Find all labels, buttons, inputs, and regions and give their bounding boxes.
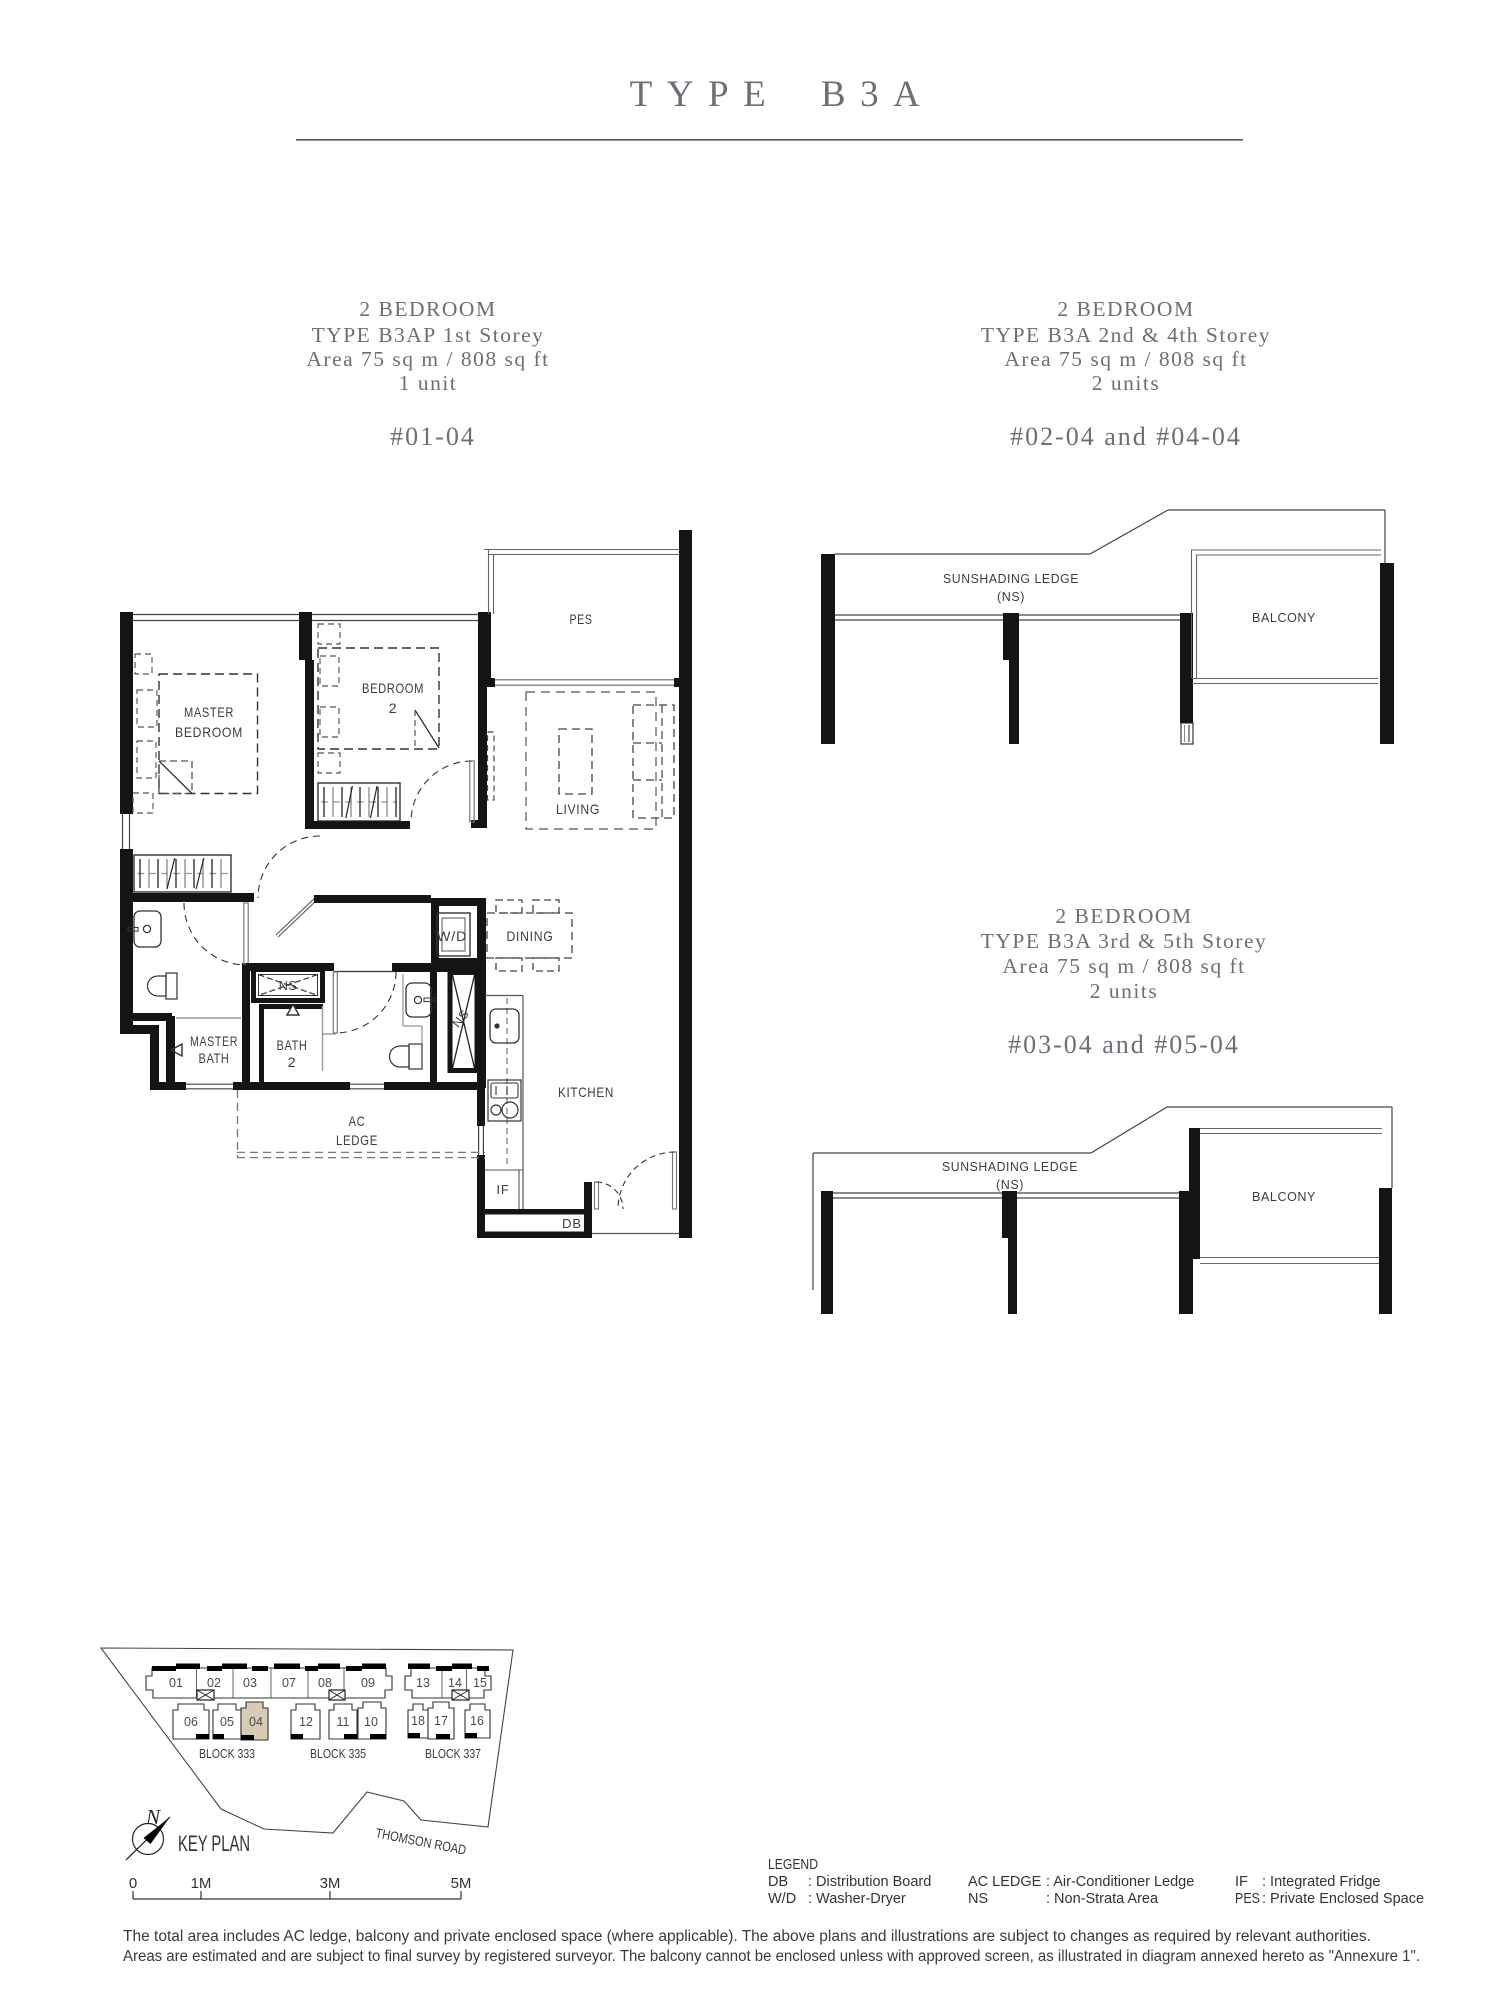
- svg-text:16: 16: [470, 1714, 484, 1728]
- svg-text:09: 09: [361, 1676, 375, 1690]
- svg-text:DB: DB: [768, 1874, 788, 1890]
- svg-text:BEDROOM: BEDROOM: [175, 724, 243, 740]
- svg-text:NS: NS: [279, 979, 298, 993]
- svg-text:12: 12: [299, 1715, 313, 1729]
- svg-text:KITCHEN: KITCHEN: [558, 1084, 614, 1100]
- svg-text:#02-04 and #04-04: #02-04 and #04-04: [1010, 422, 1242, 451]
- svg-text:NS: NS: [450, 1007, 472, 1030]
- svg-text:2 BEDROOM: 2 BEDROOM: [1057, 297, 1194, 321]
- svg-text:MASTER: MASTER: [184, 704, 234, 720]
- svg-text:: Washer-Dryer: : Washer-Dryer: [808, 1891, 906, 1907]
- svg-text:Area 75 sq m / 808 sq ft: Area 75 sq m / 808 sq ft: [1002, 954, 1245, 978]
- svg-text:3M: 3M: [320, 1875, 341, 1892]
- svg-text:BEDROOM: BEDROOM: [362, 680, 424, 696]
- svg-text:07: 07: [282, 1676, 296, 1690]
- svg-text:IF: IF: [496, 1182, 509, 1197]
- svg-text:The total area includes AC led: The total area includes AC ledge, balcon…: [123, 1928, 1371, 1945]
- svg-text:11: 11: [337, 1715, 350, 1729]
- svg-text:TYPE B3A 2nd & 4th Storey: TYPE B3A 2nd & 4th Storey: [981, 323, 1271, 347]
- svg-text:SUNSHADING LEDGE: SUNSHADING LEDGE: [942, 1160, 1078, 1174]
- svg-text:Areas are estimated and are su: Areas are estimated and are subject to f…: [123, 1948, 1420, 1965]
- svg-text:TYPE B3A 3rd & 5th Storey: TYPE B3A 3rd & 5th Storey: [981, 929, 1268, 953]
- svg-text:: Non-Strata Area: : Non-Strata Area: [1046, 1891, 1159, 1907]
- svg-text:DINING: DINING: [507, 928, 554, 944]
- svg-text:LEGEND: LEGEND: [768, 1857, 818, 1873]
- svg-text:BATH: BATH: [277, 1037, 308, 1053]
- svg-text:BALCONY: BALCONY: [1252, 610, 1316, 625]
- svg-text:05: 05: [220, 1715, 234, 1729]
- svg-text:NS: NS: [968, 1891, 988, 1907]
- svg-text:02: 02: [207, 1676, 221, 1690]
- svg-text:5M: 5M: [451, 1875, 472, 1892]
- svg-text:BLOCK 335: BLOCK 335: [310, 1746, 366, 1761]
- svg-text:(NS): (NS): [997, 590, 1025, 604]
- svg-text:BLOCK 333: BLOCK 333: [199, 1746, 255, 1761]
- svg-text:17: 17: [434, 1714, 448, 1728]
- svg-text:LEDGE: LEDGE: [336, 1132, 378, 1148]
- svg-text:: Air-Conditioner Ledge: : Air-Conditioner Ledge: [1046, 1874, 1194, 1890]
- svg-text:KEY PLAN: KEY PLAN: [178, 1831, 250, 1856]
- svg-text:BALCONY: BALCONY: [1252, 1189, 1316, 1204]
- svg-text:2 BEDROOM: 2 BEDROOM: [359, 297, 496, 321]
- svg-text:2 units: 2 units: [1090, 979, 1158, 1003]
- svg-text:04: 04: [249, 1715, 263, 1729]
- svg-text:MASTER: MASTER: [190, 1033, 238, 1049]
- svg-text:06: 06: [184, 1715, 198, 1729]
- svg-text:15: 15: [473, 1676, 487, 1690]
- svg-text:IF: IF: [1235, 1874, 1248, 1890]
- svg-text:W/D: W/D: [768, 1891, 796, 1907]
- svg-text:W/D: W/D: [437, 928, 467, 944]
- svg-text:13: 13: [416, 1676, 430, 1690]
- svg-text:0: 0: [129, 1875, 137, 1892]
- svg-text:LIVING: LIVING: [556, 801, 600, 817]
- svg-text:01: 01: [169, 1676, 183, 1690]
- svg-text:18: 18: [411, 1714, 425, 1728]
- svg-text:THOMSON ROAD: THOMSON ROAD: [374, 1825, 467, 1857]
- svg-text:(NS): (NS): [996, 1178, 1024, 1192]
- svg-text:2: 2: [389, 700, 398, 716]
- svg-text:: Distribution Board: : Distribution Board: [808, 1874, 931, 1890]
- svg-text:N: N: [145, 1805, 161, 1829]
- svg-text:10: 10: [364, 1715, 378, 1729]
- svg-text:: Integrated Fridge: : Integrated Fridge: [1262, 1874, 1381, 1890]
- svg-text:PES: PES: [1235, 1891, 1260, 1907]
- svg-text:AC LEDGE: AC LEDGE: [968, 1874, 1042, 1890]
- svg-text:14: 14: [448, 1676, 462, 1690]
- svg-text:1M: 1M: [191, 1875, 212, 1892]
- svg-text:: Private Enclosed Space: : Private Enclosed Space: [1262, 1891, 1424, 1907]
- svg-text:DB: DB: [562, 1216, 582, 1231]
- svg-text:PES: PES: [570, 611, 593, 627]
- svg-text:SUNSHADING LEDGE: SUNSHADING LEDGE: [943, 572, 1079, 586]
- svg-text:BLOCK 337: BLOCK 337: [425, 1746, 481, 1761]
- svg-text:1 unit: 1 unit: [399, 371, 458, 395]
- svg-text:03: 03: [243, 1676, 257, 1690]
- svg-text:TYPE B3AP 1st Storey: TYPE B3AP 1st Storey: [312, 323, 545, 347]
- svg-text:Area 75 sq m / 808 sq ft: Area 75 sq m / 808 sq ft: [306, 347, 549, 371]
- svg-text:2 BEDROOM: 2 BEDROOM: [1055, 904, 1192, 928]
- svg-text:#03-04 and #05-04: #03-04 and #05-04: [1008, 1030, 1240, 1059]
- svg-text:BATH: BATH: [199, 1050, 230, 1066]
- svg-text:2: 2: [288, 1054, 297, 1070]
- svg-text:AC: AC: [349, 1113, 366, 1129]
- svg-text:08: 08: [318, 1676, 332, 1690]
- svg-text:2 units: 2 units: [1092, 371, 1160, 395]
- svg-text:TYPE B3A: TYPE B3A: [630, 74, 935, 115]
- svg-text:Area 75 sq m / 808 sq ft: Area 75 sq m / 808 sq ft: [1004, 347, 1247, 371]
- svg-text:#01-04: #01-04: [390, 422, 476, 451]
